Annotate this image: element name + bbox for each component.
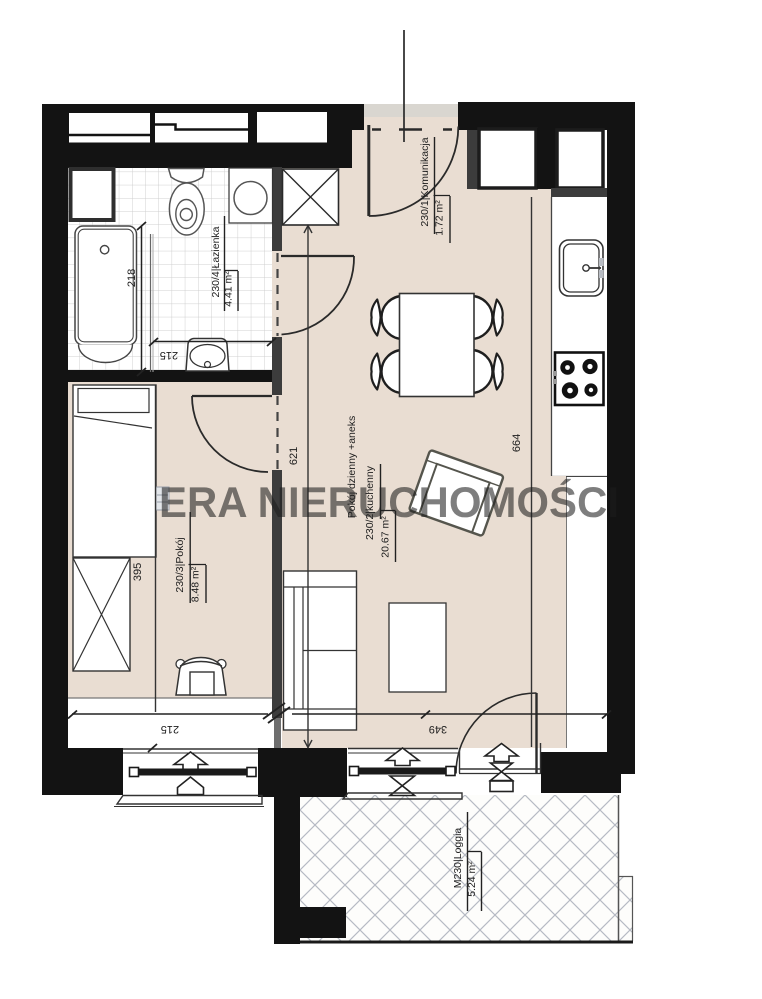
svg-text:664: 664 <box>511 434 523 452</box>
svg-text:4.41 m²: 4.41 m² <box>223 271 235 307</box>
svg-text:ERA NIERUCHOMOŚCI: ERA NIERUCHOMOŚCI <box>159 478 619 527</box>
svg-text:5.24 m²: 5.24 m² <box>466 861 478 897</box>
svg-text:215: 215 <box>161 723 179 735</box>
svg-text:349: 349 <box>429 723 447 735</box>
svg-text:230/4|Łazienka: 230/4|Łazienka <box>210 226 222 297</box>
svg-text:621: 621 <box>288 447 300 465</box>
svg-text:218: 218 <box>126 269 138 287</box>
svg-text:1.72 m²: 1.72 m² <box>434 200 446 236</box>
svg-text:215: 215 <box>160 349 178 361</box>
svg-text:230/3|Pokój: 230/3|Pokój <box>174 537 186 592</box>
svg-text:395: 395 <box>132 563 144 581</box>
svg-text:M230|Loggia: M230|Loggia <box>452 828 464 889</box>
svg-text:8.48 m²: 8.48 m² <box>190 566 202 602</box>
svg-text:230/1|Komunikacja: 230/1|Komunikacja <box>419 137 431 226</box>
